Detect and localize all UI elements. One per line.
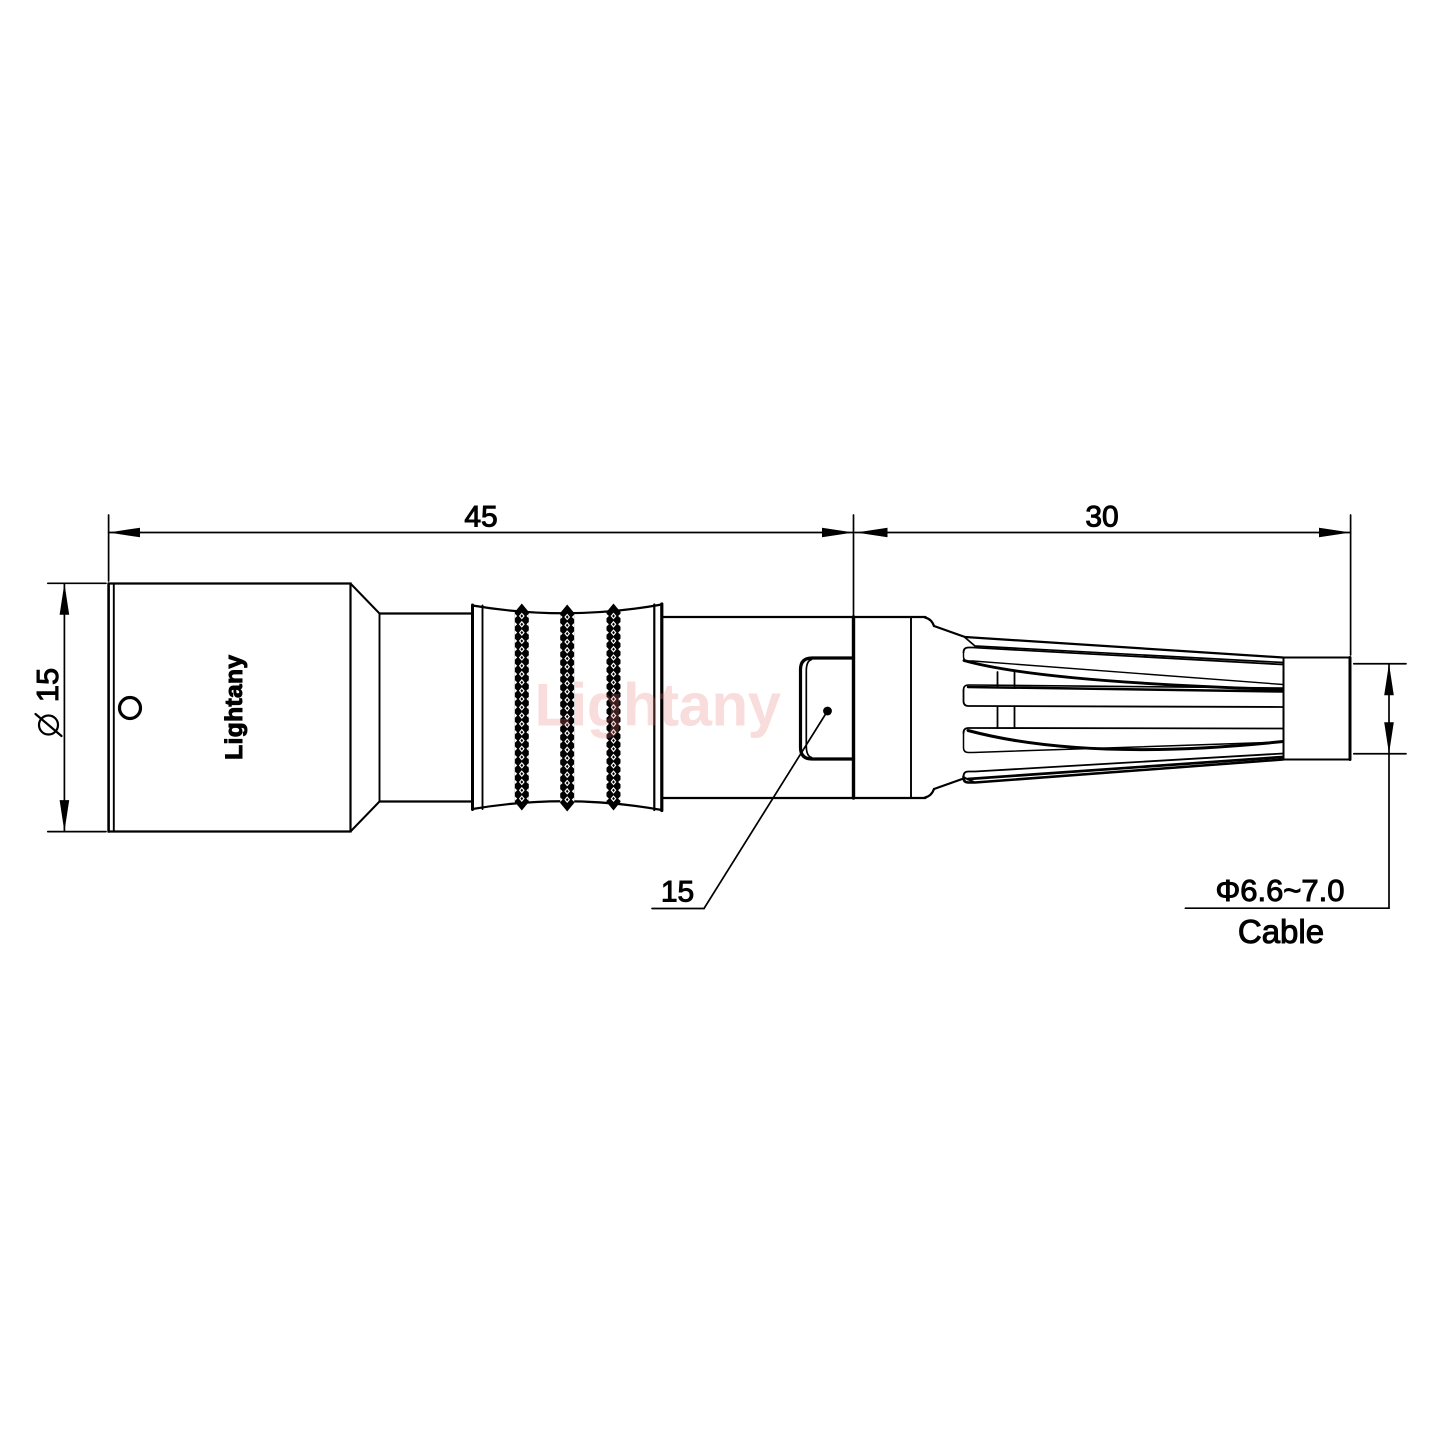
svg-text:45: 45 (464, 501, 497, 534)
svg-text:Φ6.6~7.0: Φ6.6~7.0 (1215, 873, 1344, 908)
svg-text:15: 15 (661, 876, 694, 909)
svg-text:15: 15 (30, 668, 65, 702)
svg-text:30: 30 (1085, 501, 1118, 534)
svg-text:Cable: Cable (1238, 913, 1324, 950)
svg-text:Lightany: Lightany (221, 655, 248, 760)
svg-text:Lightany: Lightany (535, 672, 782, 739)
